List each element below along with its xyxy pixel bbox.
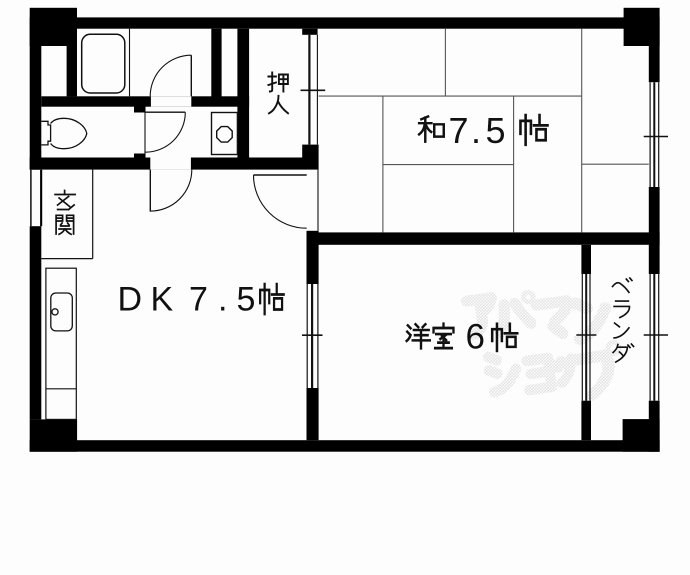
svg-text:5: 5 <box>486 110 506 151</box>
svg-text:5: 5 <box>237 281 256 319</box>
svg-text:6: 6 <box>466 318 485 357</box>
svg-text:D: D <box>118 281 143 319</box>
svg-text:7: 7 <box>189 281 208 319</box>
svg-text:.: . <box>218 281 227 319</box>
svg-text:K: K <box>151 281 174 319</box>
svg-text:.: . <box>471 110 481 151</box>
svg-text:7: 7 <box>449 110 469 151</box>
